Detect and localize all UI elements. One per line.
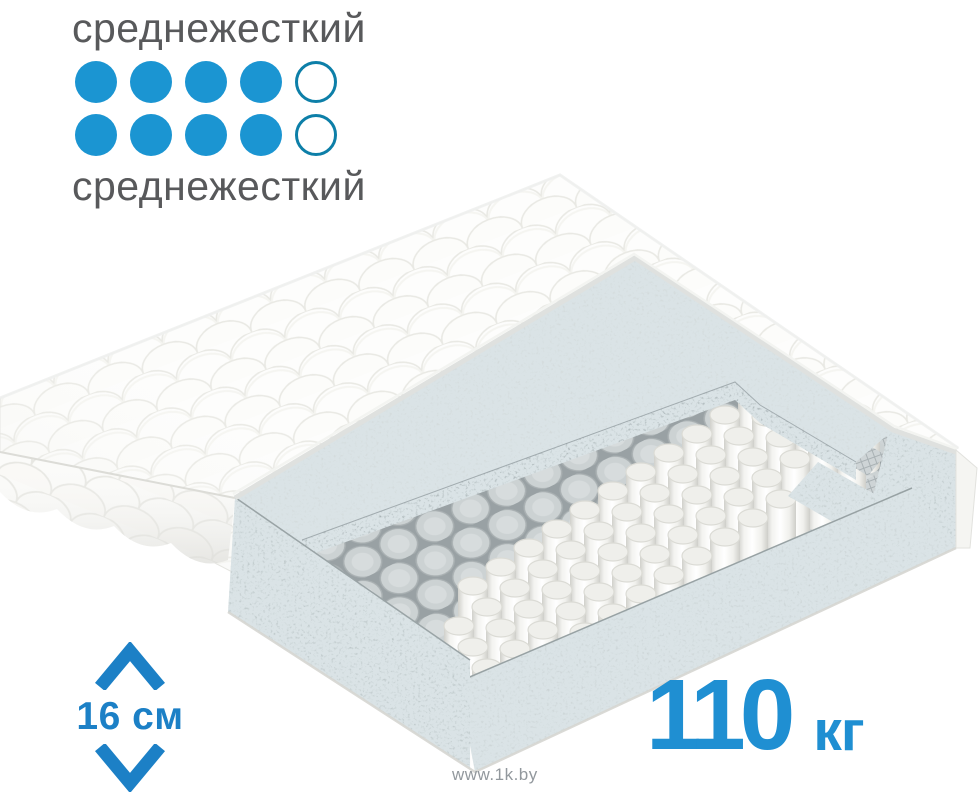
firmness-dot-filled: [185, 61, 227, 103]
firmness-label-top: среднежесткий: [72, 7, 366, 50]
firmness-dot-filled: [130, 61, 172, 103]
chevron-down-icon: [93, 744, 167, 792]
product-image: среднежесткий среднежесткий 16 см 110 кг…: [0, 0, 980, 804]
firmness-dot-filled: [240, 114, 282, 156]
firmness-dot-filled: [130, 114, 172, 156]
firmness-dot-empty: [295, 61, 337, 103]
watermark: www.1k.by: [452, 765, 538, 785]
right-fabric-drape: [956, 450, 977, 548]
max-weight-unit: кг: [813, 703, 863, 763]
firmness-dots-bottom: [75, 114, 337, 156]
chevron-up-icon: [93, 642, 167, 690]
firmness-dot-filled: [185, 114, 227, 156]
max-weight-value: 110: [646, 668, 789, 763]
firmness-dot-filled: [240, 61, 282, 103]
max-weight-badge: 110 кг: [646, 668, 864, 763]
firmness-dot-filled: [75, 61, 117, 103]
firmness-dots-top: [75, 61, 337, 103]
firmness-dot-filled: [75, 114, 117, 156]
firmness-label-bottom: среднежесткий: [72, 165, 366, 208]
firmness-rating: [75, 61, 337, 156]
firmness-dot-empty: [295, 114, 337, 156]
height-value: 16 см: [76, 697, 183, 736]
height-badge: 16 см: [78, 642, 182, 792]
